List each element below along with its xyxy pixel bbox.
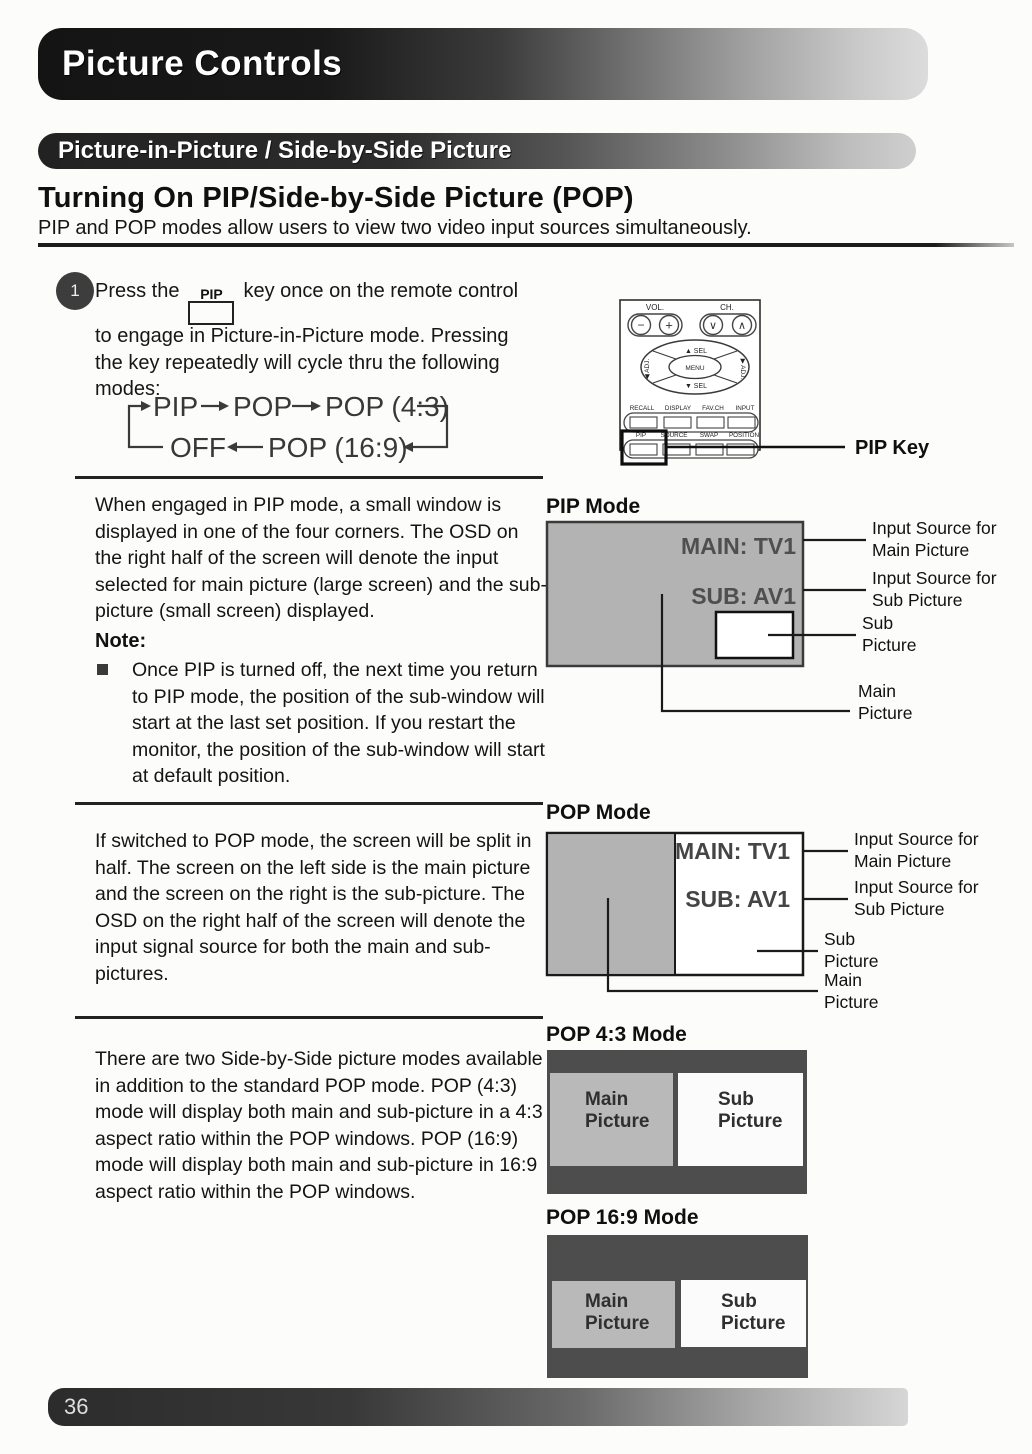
recall-label: RECALL (630, 405, 655, 412)
pip-callout-main-2: Picture (858, 703, 912, 723)
pop-osd-main: MAIN: TV1 (675, 838, 790, 864)
pop-body-text: If switched to POP mode, the screen will… (95, 828, 547, 987)
intro-divider (38, 243, 1014, 247)
step-line-3: the key repeatedly will cycle thru the f… (95, 350, 565, 377)
pip-osd-main: MAIN: TV1 (681, 533, 796, 559)
swap-button (696, 444, 723, 455)
pop43-main-label-2: Picture (585, 1111, 649, 1132)
recall-button (630, 417, 657, 428)
remote-illustration: VOL. − + CH. ∨ ∧ MENU ▲ SEL ▼ SEL ◀ ADJ.… (605, 283, 1032, 475)
main-heading: Turning On PIP/Side-by-Side Picture (POP… (38, 182, 634, 215)
pip-key-inline-icon: PIP (188, 288, 234, 325)
sel-up-label: ▲ SEL (685, 348, 707, 355)
step-line1-pre: Press the (95, 278, 179, 305)
pop43-main-label-1: Main (585, 1089, 628, 1110)
menu-label: MENU (685, 365, 704, 372)
cycle-pop169-label: POP (16:9) (268, 432, 408, 463)
manual-page: Picture Controls Picture-in-Picture / Si… (0, 0, 1032, 1454)
note-bullet (97, 664, 108, 675)
page-title: Picture Controls (38, 44, 342, 84)
pop-mode-diagram: POP Mode MAIN: TV1 SUB: AV1 Input Source… (540, 800, 1032, 1015)
pop-callout-main-2: Picture (824, 992, 878, 1012)
section-bar: Picture-in-Picture / Side-by-Side Pictur… (38, 133, 916, 169)
pop169-main-label-2: Picture (585, 1313, 649, 1334)
sbs-body-text: There are two Side-by-Side picture modes… (95, 1046, 555, 1205)
note-text: Once PIP is turned off, the next time yo… (132, 659, 545, 787)
pop-callout-input-sub-2: Sub Picture (854, 899, 944, 919)
pip-callout-input-main-2: Main Picture (872, 540, 969, 560)
note-heading: Note: (95, 630, 146, 653)
pop43-sub-label-2: Picture (718, 1111, 782, 1132)
pip-callout-input-main-1: Input Source for (872, 518, 997, 538)
pop43-sub-label-1: Sub (718, 1089, 754, 1110)
pop-callout-sub-2: Picture (824, 951, 878, 971)
page-title-bar: Picture Controls (38, 28, 928, 100)
pip-callout-sub-2: Picture (862, 635, 916, 655)
adj-left-label: ◀ ADJ. (644, 359, 651, 380)
vol-plus-icon: + (665, 318, 673, 333)
divider-pop (75, 802, 543, 805)
arrow-into-pip (141, 401, 151, 411)
pop169-sub-label-2: Picture (721, 1313, 785, 1334)
divider-sbs (75, 1016, 543, 1019)
pip-mode-title: PIP Mode (546, 495, 640, 518)
cycle-pop-label: POP (233, 391, 292, 422)
pip-osd-sub: SUB: AV1 (691, 583, 796, 609)
input-button (728, 417, 755, 428)
sel-down-label: ▼ SEL (685, 383, 707, 390)
pop169-sub-label-1: Sub (721, 1291, 757, 1312)
vol-label: VOL. (646, 303, 664, 312)
pop169-diagram: POP 16:9 Mode Main Picture Sub Picture (540, 1205, 832, 1385)
section-title: Picture-in-Picture / Side-by-Side Pictur… (38, 137, 511, 165)
step-text: Press the PIP key once on the remote con… (95, 278, 565, 403)
divider-pip (75, 476, 543, 479)
pop-mode-title: POP Mode (546, 801, 651, 824)
footer-bar: 36 (48, 1388, 908, 1426)
pop43-diagram: POP 4:3 Mode Main Picture Sub Picture (540, 1022, 830, 1200)
pop-callout-sub-1: Sub (824, 929, 855, 949)
favch-label: FAV.CH (702, 405, 724, 412)
pop-callout-input-sub-1: Input Source for (854, 877, 979, 897)
input-label: INPUT (736, 405, 755, 412)
step-line-1: Press the PIP key once on the remote con… (95, 278, 565, 323)
pip-body-text: When engaged in PIP mode, a small window… (95, 492, 547, 625)
vol-minus-icon: − (637, 318, 644, 332)
step-number-badge: 1 (56, 272, 94, 310)
pip-callout-input-sub-2: Sub Picture (872, 590, 962, 610)
display-button (664, 417, 691, 428)
pop-osd-sub: SUB: AV1 (685, 886, 790, 912)
swap-label: SWAP (700, 432, 718, 439)
cycle-pop43-label: POP (4:3) (325, 391, 449, 422)
mode-cycle-diagram: PIP POP POP (4:3) OFF POP (16:9) (115, 386, 460, 474)
pop-callout-input-main-1: Input Source for (854, 829, 979, 849)
pop169-main-label-1: Main (585, 1291, 628, 1312)
pop-main-half (548, 834, 675, 974)
ch-label: CH. (720, 303, 734, 312)
pop-callout-main-1: Main (824, 970, 862, 990)
pip-callout-input-sub-1: Input Source for (872, 568, 997, 588)
cycle-off-label: OFF (170, 432, 226, 463)
note-item: Once PIP is turned off, the next time yo… (95, 657, 552, 790)
position-label: POSITION (729, 432, 760, 439)
favch-button (697, 417, 724, 428)
cycle-pip-label: PIP (153, 391, 198, 422)
step-line-2: to engage in Picture-in-Picture mode. Pr… (95, 323, 565, 350)
arrow-pop-pop43 (311, 401, 321, 411)
adj-right-label: ▶ ADJ. (739, 359, 746, 380)
arrow-pop169-off (227, 442, 237, 452)
pip-callout-main-1: Main (858, 681, 896, 701)
pop43-title: POP 4:3 Mode (546, 1023, 687, 1046)
pip-key-box (188, 301, 234, 325)
pip-label: PIP (636, 432, 646, 439)
page-number: 36 (48, 1394, 88, 1420)
display-label: DISPLAY (665, 405, 692, 412)
pip-button (630, 444, 657, 455)
position-button (727, 444, 754, 455)
pip-key-callout-label: PIP Key (855, 437, 930, 459)
pip-callout-sub-1: Sub (862, 613, 893, 633)
step-line1-post: key once on the remote control (243, 278, 518, 305)
arrow-pip-pop (219, 401, 229, 411)
pop-callout-input-main-2: Main Picture (854, 851, 951, 871)
pop169-title: POP 16:9 Mode (546, 1206, 699, 1229)
pip-mode-diagram: PIP Mode MAIN: TV1 SUB: AV1 Input Source… (540, 494, 1032, 734)
intro-text: PIP and POP modes allow users to view tw… (38, 217, 752, 240)
ch-up-icon: ∧ (738, 320, 746, 332)
ch-down-icon: ∨ (709, 320, 717, 332)
pip-key-cap-label: PIP (188, 288, 234, 301)
